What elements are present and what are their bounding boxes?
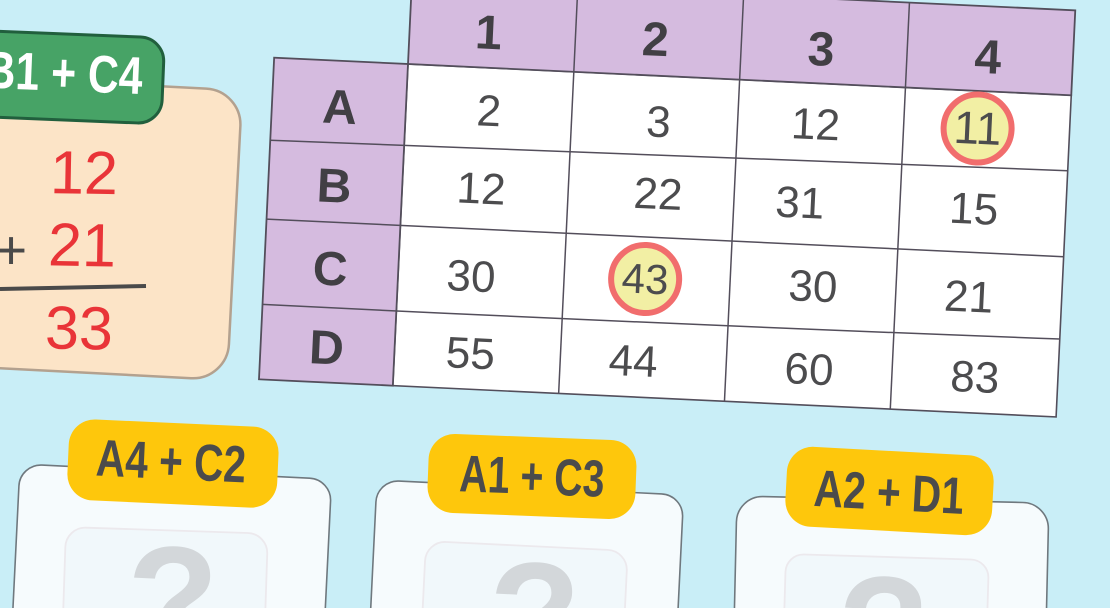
svg-text:33: 33 [44, 293, 113, 362]
svg-text:?: ? [127, 515, 219, 608]
svg-text:A4 + C2: A4 + C2 [95, 430, 247, 495]
svg-text:?: ? [489, 531, 581, 608]
svg-text:3: 3 [645, 97, 672, 147]
svg-text:B: B [316, 159, 353, 214]
svg-text:83: 83 [949, 352, 1000, 403]
svg-text:2: 2 [475, 86, 502, 136]
svg-text:21: 21 [943, 272, 994, 323]
svg-text:A1 + C3: A1 + C3 [458, 445, 605, 509]
svg-text:30: 30 [445, 251, 496, 302]
svg-text:A2 + D1: A2 + D1 [812, 460, 965, 526]
svg-text:60: 60 [783, 344, 834, 395]
svg-text:15: 15 [948, 184, 999, 235]
svg-text:55: 55 [445, 328, 496, 379]
svg-text:22: 22 [633, 169, 684, 220]
svg-text:30: 30 [787, 261, 838, 312]
svg-text:2: 2 [641, 13, 670, 67]
svg-text:12: 12 [790, 99, 841, 150]
svg-text:21: 21 [47, 210, 116, 279]
svg-text:D: D [308, 321, 345, 376]
svg-text:44: 44 [608, 336, 659, 387]
svg-text:A: A [321, 81, 358, 136]
svg-text:C: C [312, 242, 349, 297]
svg-text:31: 31 [774, 177, 825, 228]
svg-text:?: ? [838, 545, 930, 608]
svg-text:12: 12 [456, 163, 507, 214]
svg-text:43: 43 [621, 254, 670, 303]
svg-text:11: 11 [953, 101, 1003, 155]
svg-text:+: + [0, 219, 27, 281]
svg-text:12: 12 [49, 138, 118, 207]
svg-text:4: 4 [973, 31, 1002, 85]
svg-text:1: 1 [474, 6, 503, 60]
svg-text:B1 + C4: B1 + C4 [0, 41, 144, 106]
svg-text:3: 3 [807, 23, 836, 77]
